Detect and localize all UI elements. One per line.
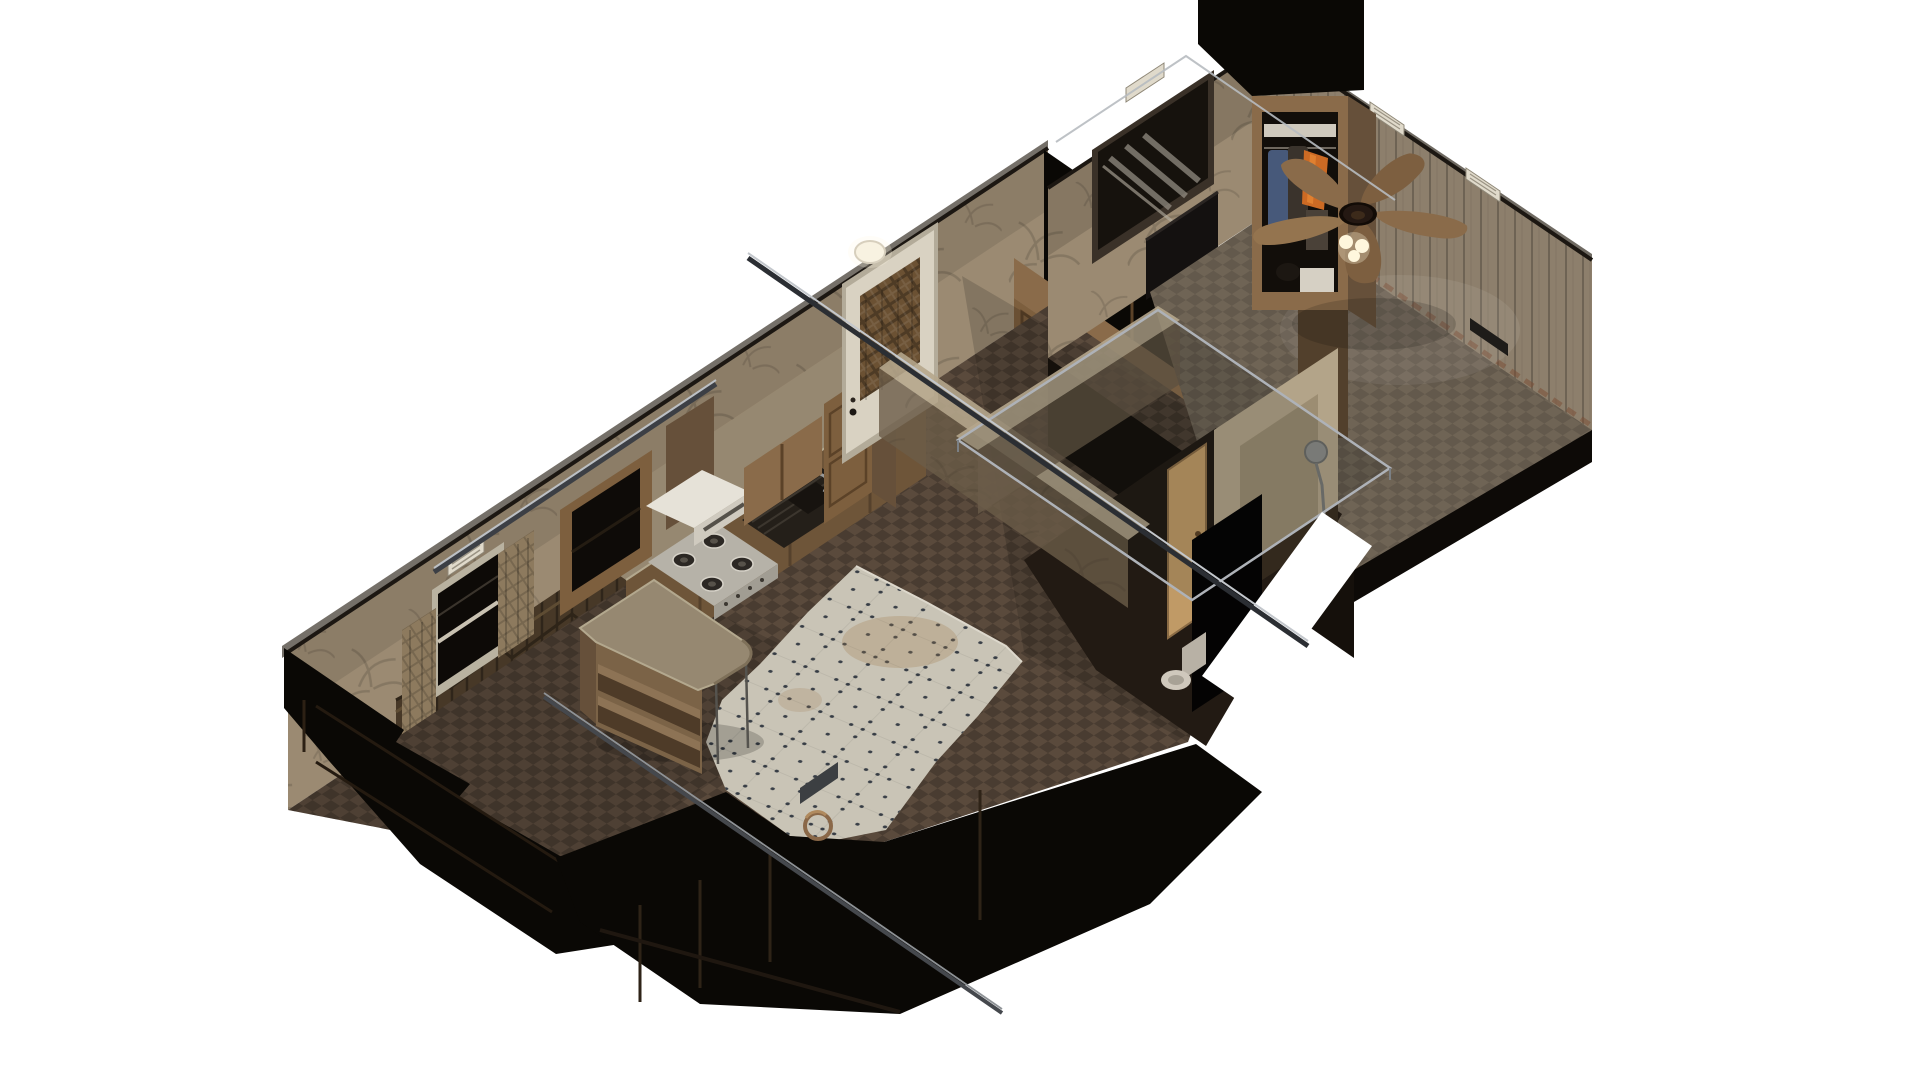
render-canvas [0, 0, 1920, 1080]
deadbolt [851, 398, 856, 403]
closet-white-box [1300, 268, 1334, 292]
tile-stain-small [778, 688, 822, 712]
island-left-side [580, 628, 596, 724]
isometric-scene [0, 0, 1920, 1080]
lamp-glow [848, 236, 892, 268]
fan-shadow [1292, 298, 1456, 350]
tile-stain [842, 616, 958, 668]
toilet-seat [1168, 675, 1184, 685]
fan-lights [1338, 232, 1370, 264]
door-knob [850, 409, 857, 416]
